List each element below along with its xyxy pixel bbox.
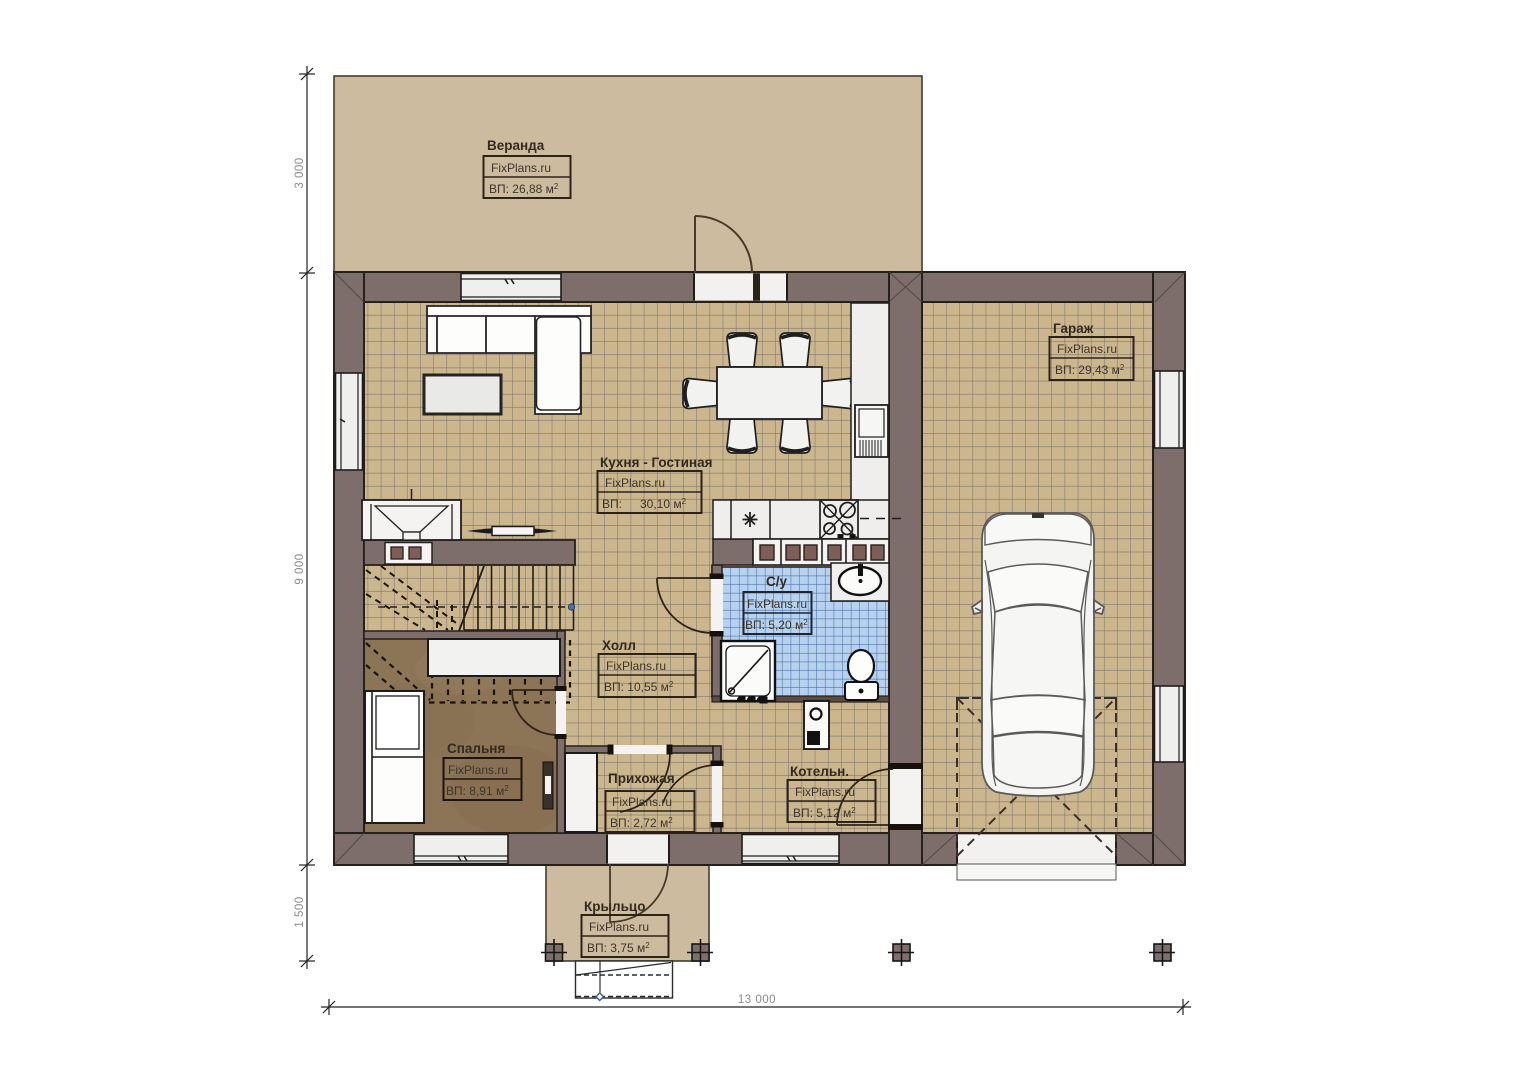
svg-text:FixPlans.ru: FixPlans.ru xyxy=(612,795,672,809)
svg-text:30,10 м2: 30,10 м2 xyxy=(640,497,687,511)
svg-text:13 000: 13 000 xyxy=(738,994,776,1006)
svg-text:FixPlans.ru: FixPlans.ru xyxy=(606,659,666,673)
svg-text:ВП: 2,72 м2: ВП: 2,72 м2 xyxy=(610,816,673,830)
svg-text:FixPlans.ru: FixPlans.ru xyxy=(605,476,665,490)
svg-text:Прихожая: Прихожая xyxy=(608,771,675,786)
svg-text:Спальня: Спальня xyxy=(447,741,505,756)
svg-text:ВП: 10,55 м2: ВП: 10,55 м2 xyxy=(604,680,674,694)
svg-text:Кухня - Гостиная: Кухня - Гостиная xyxy=(600,455,712,470)
svg-text:FixPlans.ru: FixPlans.ru xyxy=(491,161,551,175)
svg-text:Веранда: Веранда xyxy=(487,138,545,153)
svg-text:FixPlans.ru: FixPlans.ru xyxy=(589,920,649,934)
svg-text:ВП: 5,12 м2: ВП: 5,12 м2 xyxy=(793,806,856,820)
svg-text:ВП: 8,91 м2: ВП: 8,91 м2 xyxy=(446,784,509,798)
svg-text:FixPlans.ru: FixPlans.ru xyxy=(448,763,508,777)
svg-text:FixPlans.ru: FixPlans.ru xyxy=(795,785,855,799)
svg-text:3 000: 3 000 xyxy=(294,157,306,188)
svg-text:ВП: 26,88 м2: ВП: 26,88 м2 xyxy=(489,182,559,196)
svg-text:FixPlans.ru: FixPlans.ru xyxy=(747,597,807,611)
svg-text:Гараж: Гараж xyxy=(1053,321,1094,336)
svg-text:Крыльцо: Крыльцо xyxy=(584,899,645,914)
svg-text:9 000: 9 000 xyxy=(294,553,306,584)
svg-text:ВП: 5,20 м2: ВП: 5,20 м2 xyxy=(745,618,808,632)
svg-text:1 500: 1 500 xyxy=(294,896,306,927)
svg-text:ВП: 29,43 м2: ВП: 29,43 м2 xyxy=(1055,363,1125,377)
svg-text:Котельн.: Котельн. xyxy=(790,764,849,779)
svg-text:ВП: 3,75 м2: ВП: 3,75 м2 xyxy=(587,941,650,955)
svg-text:FixPlans.ru: FixPlans.ru xyxy=(1057,342,1117,356)
svg-text:ВП:: ВП: xyxy=(602,497,622,511)
svg-text:С/у: С/у xyxy=(766,574,788,589)
svg-text:Холл: Холл xyxy=(602,638,636,653)
